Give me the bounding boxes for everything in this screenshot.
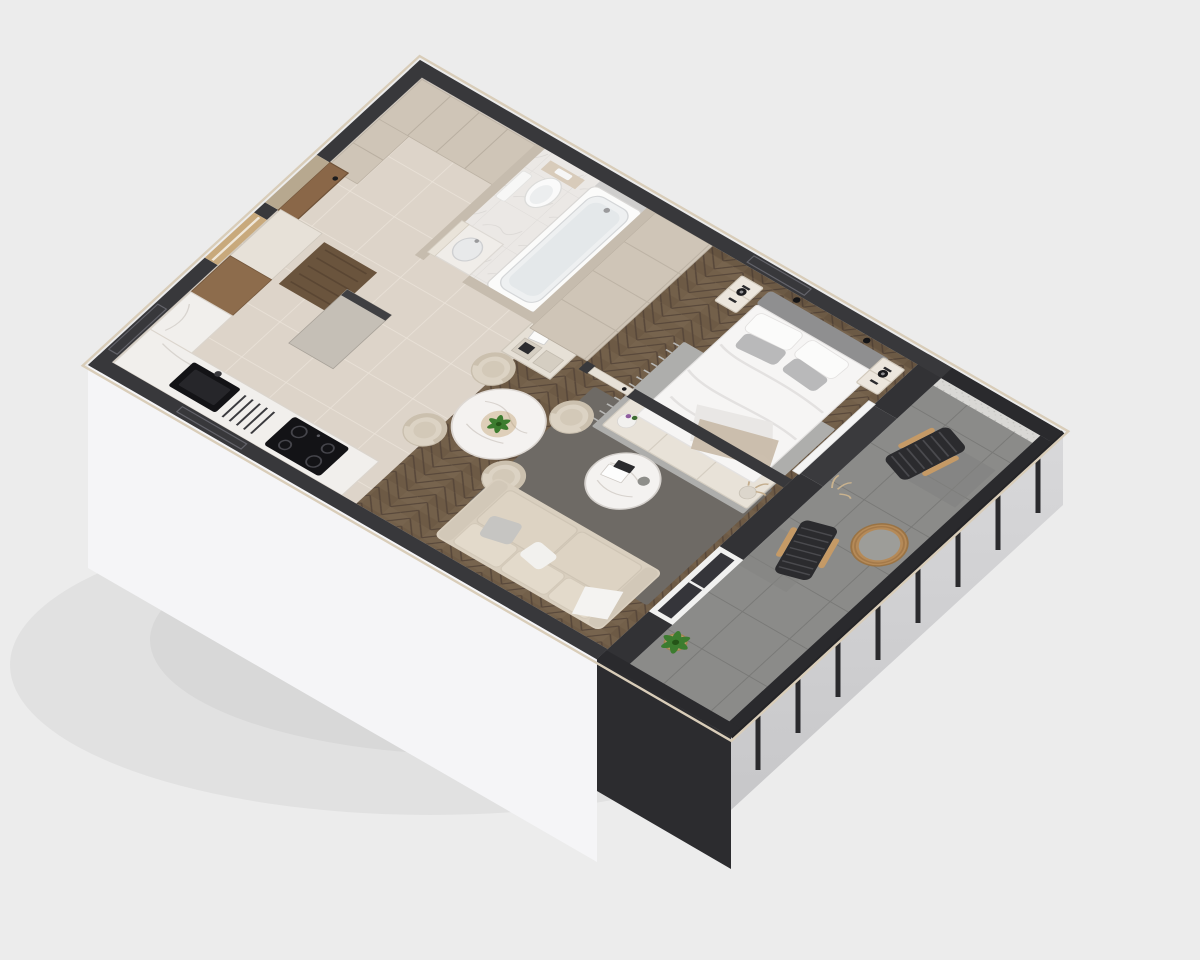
render-stage	[0, 0, 1200, 960]
floor-plan-render	[0, 0, 1200, 960]
